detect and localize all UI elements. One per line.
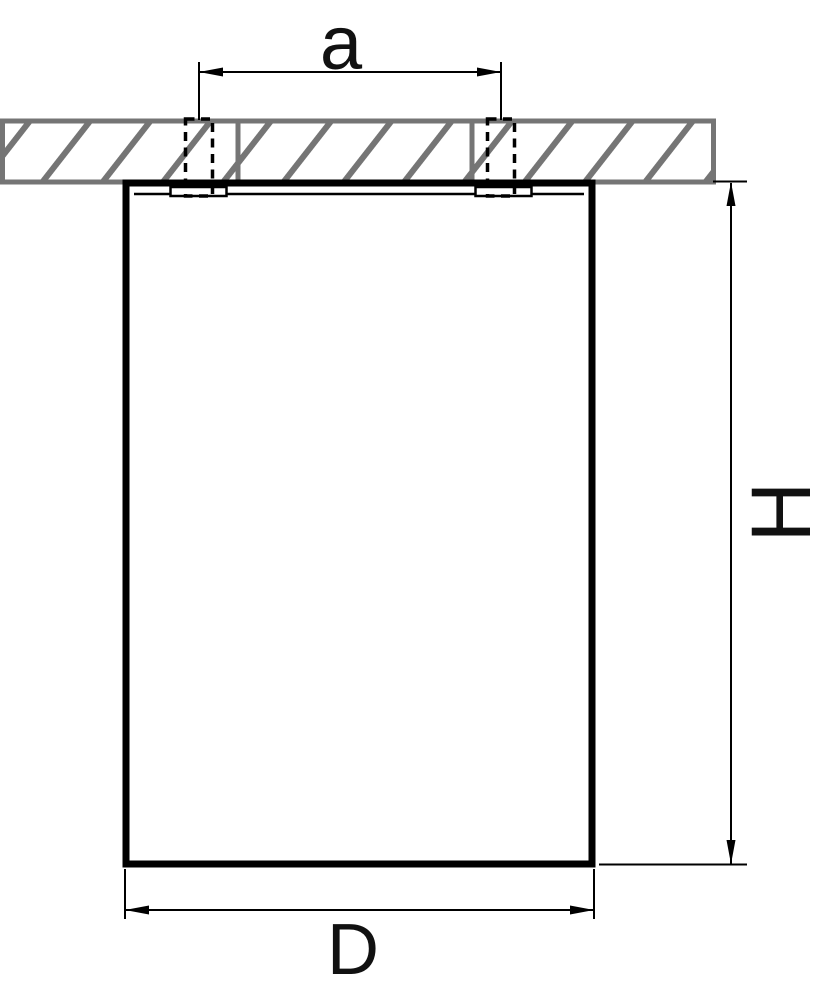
dim-d-arrow-right: [570, 906, 594, 915]
mount-bracket-left: [171, 187, 227, 196]
dim-label-h: H: [739, 482, 816, 543]
dim-h-arrow-bottom: [727, 840, 736, 864]
dim-a-arrow-right: [477, 68, 501, 77]
ceiling-slab-hatch: [3, 121, 714, 182]
dim-a-arrow-left: [199, 68, 223, 77]
fixture-body: [126, 183, 592, 864]
dim-d-arrow-left: [125, 906, 149, 915]
dim-label-d: D: [327, 914, 379, 986]
dim-h-arrow-top: [727, 182, 736, 206]
fixture-dimension-drawing: [0, 0, 816, 1000]
dim-label-a: a: [320, 6, 362, 82]
diagram-canvas: a H D: [0, 0, 816, 1000]
